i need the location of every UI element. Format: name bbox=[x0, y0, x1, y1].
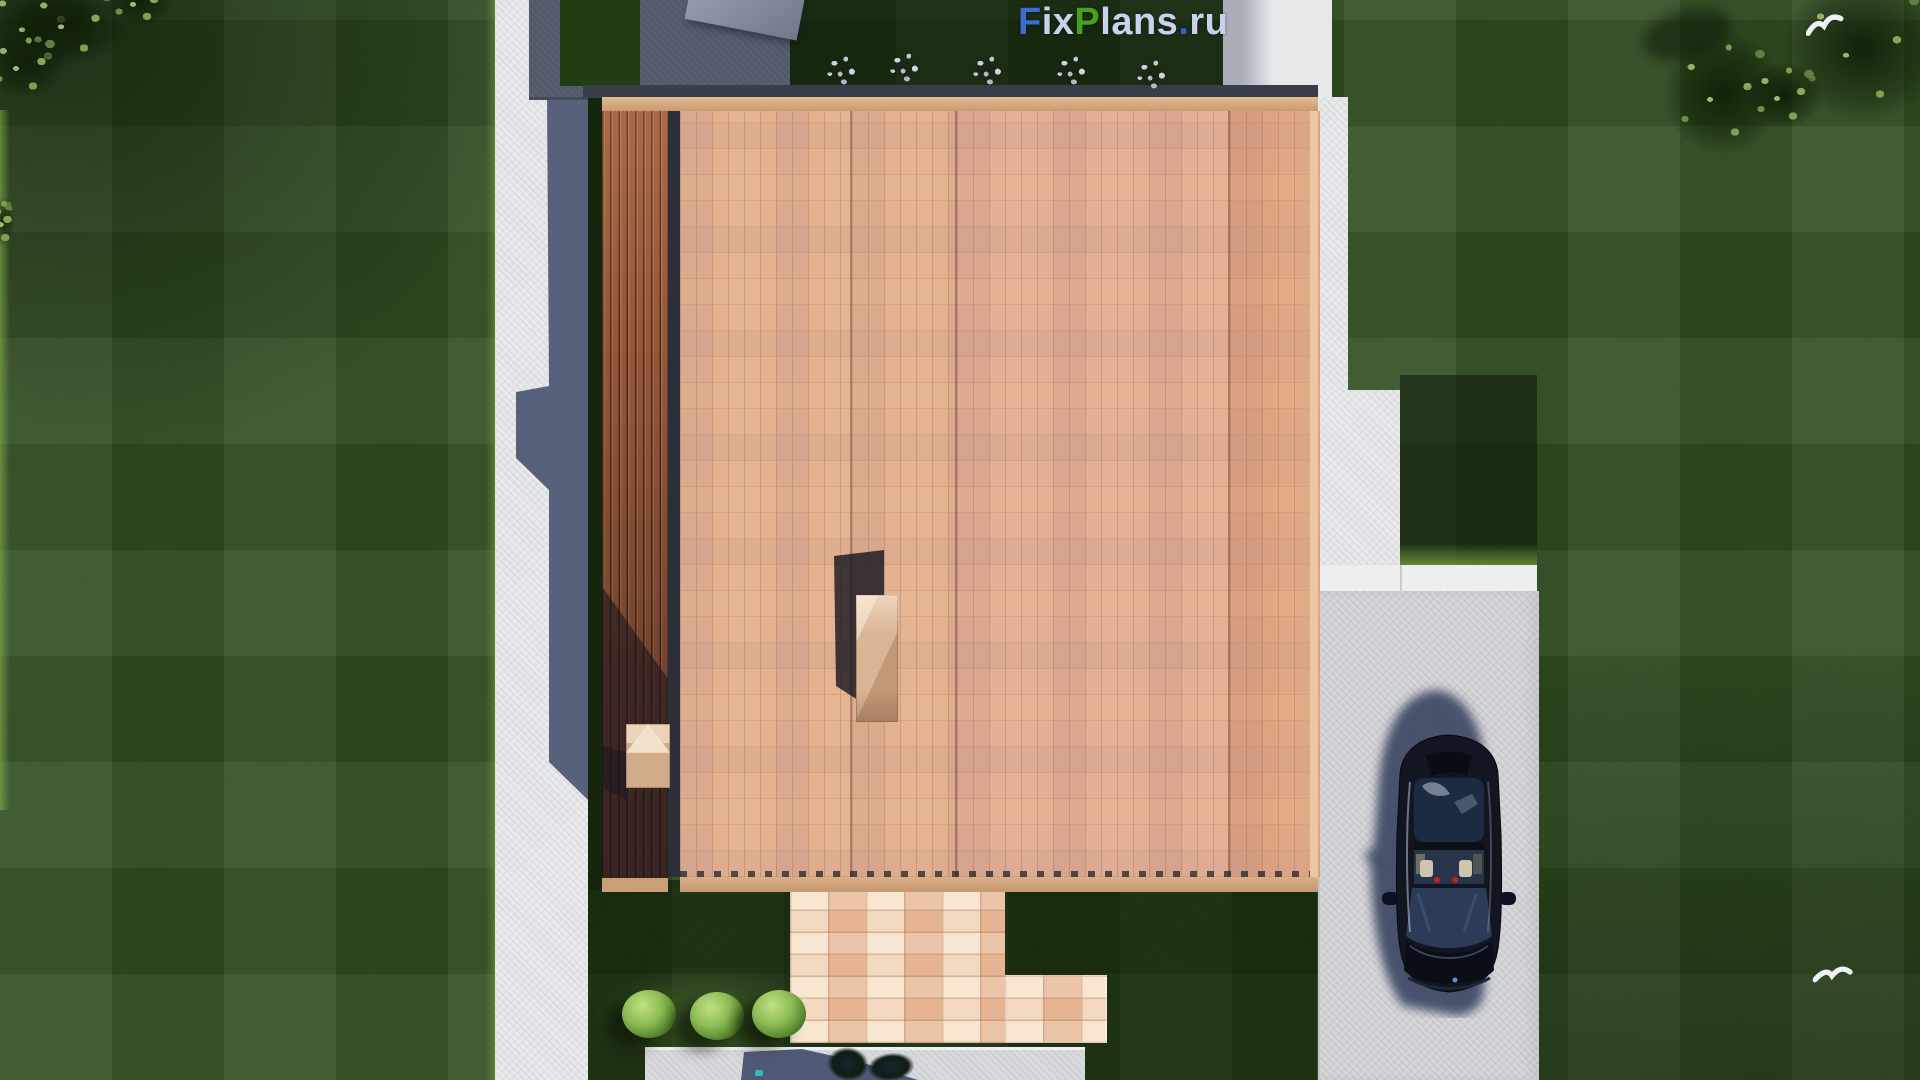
cyan-object bbox=[755, 1070, 763, 1076]
deck-south-fascia bbox=[602, 878, 668, 892]
roof-section-4 bbox=[1228, 111, 1320, 877]
watermark-letter: . bbox=[1178, 1, 1189, 43]
south-eave-fascia bbox=[680, 877, 1318, 892]
car-mirror-right bbox=[1499, 892, 1516, 905]
lawn-pocket-shade bbox=[1400, 375, 1537, 565]
north-eave-fascia bbox=[602, 97, 1318, 111]
pale-shrub-2 bbox=[886, 50, 924, 84]
flying-bird-top bbox=[1806, 10, 1844, 42]
watermark-letter: F bbox=[1018, 1, 1042, 43]
east-roof-edge bbox=[1310, 111, 1318, 877]
east-walkway-lower bbox=[1318, 390, 1400, 565]
car-roof-divider bbox=[1414, 842, 1484, 850]
car-headrest bbox=[1459, 860, 1472, 877]
roof-section-1 bbox=[680, 111, 850, 877]
car-mirror-left bbox=[1382, 892, 1399, 905]
deck-skylight-box bbox=[626, 724, 670, 788]
car-red-detail bbox=[1434, 877, 1440, 883]
shaded-grass-strip bbox=[588, 95, 602, 890]
car-door-panel bbox=[1473, 854, 1482, 874]
north-walkway bbox=[1223, 0, 1332, 97]
lawn-shade-bottomright bbox=[1537, 640, 1920, 1080]
parked-car bbox=[1358, 674, 1522, 1018]
pale-shrub-1 bbox=[823, 53, 861, 87]
car-headrest bbox=[1420, 860, 1433, 877]
green-shrub-3 bbox=[752, 990, 806, 1038]
car-headlight-glint bbox=[1453, 978, 1458, 983]
pale-shrub-5 bbox=[1133, 57, 1171, 91]
rear-porch bbox=[790, 888, 1005, 1043]
driveway-apron bbox=[1318, 565, 1537, 593]
pad-lawn-inset bbox=[560, 0, 640, 86]
watermark-letter: ix bbox=[1042, 1, 1075, 43]
car-red-detail bbox=[1452, 877, 1458, 883]
green-shrub-2 bbox=[690, 992, 744, 1040]
site-plan-render: FixPlans.ru bbox=[0, 0, 1920, 1080]
watermark-letter: lans bbox=[1100, 1, 1178, 43]
rear-porch-extension bbox=[1005, 975, 1107, 1043]
watermark-letter: P bbox=[1074, 1, 1100, 43]
watermark: FixPlans.ru bbox=[1018, 1, 1228, 44]
roof-skylight-box bbox=[856, 595, 898, 722]
east-walkway-upper bbox=[1318, 97, 1348, 390]
pale-shrub-4 bbox=[1053, 53, 1091, 87]
pale-shrub-3 bbox=[969, 53, 1007, 87]
green-shrub-1 bbox=[622, 990, 676, 1038]
watermark-letter: ru bbox=[1189, 1, 1228, 43]
lawn-shade-topleft bbox=[0, 0, 560, 460]
roof-section-2 bbox=[850, 111, 957, 877]
tree-top-right-canopy bbox=[1745, 60, 1825, 130]
car-top-view bbox=[1358, 674, 1522, 1018]
roof-section-3 bbox=[955, 111, 1230, 877]
